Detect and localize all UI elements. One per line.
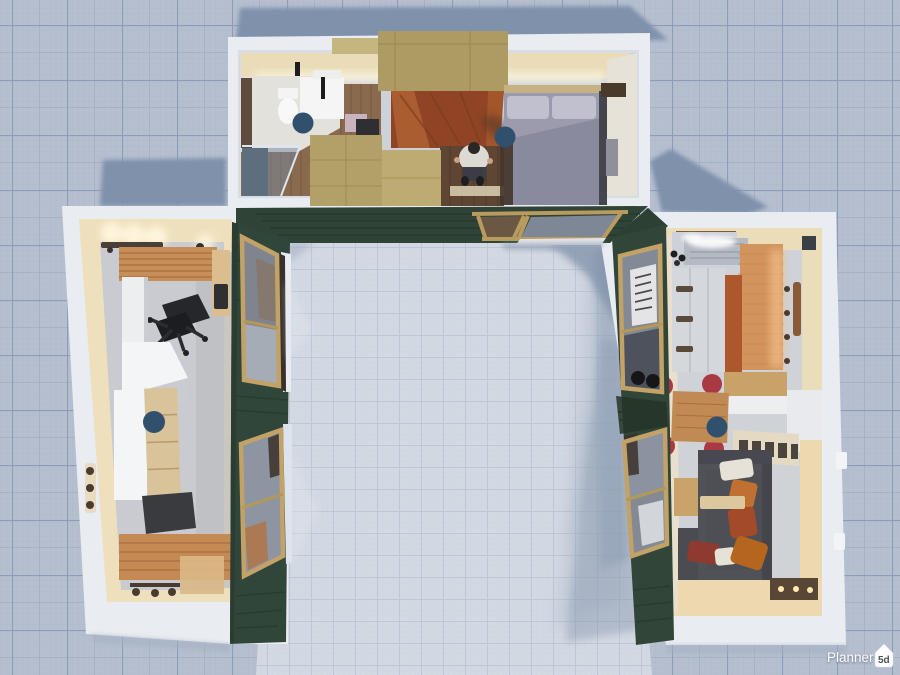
svg-text:Planner: Planner [827, 650, 874, 665]
svg-text:5d: 5d [878, 655, 890, 666]
